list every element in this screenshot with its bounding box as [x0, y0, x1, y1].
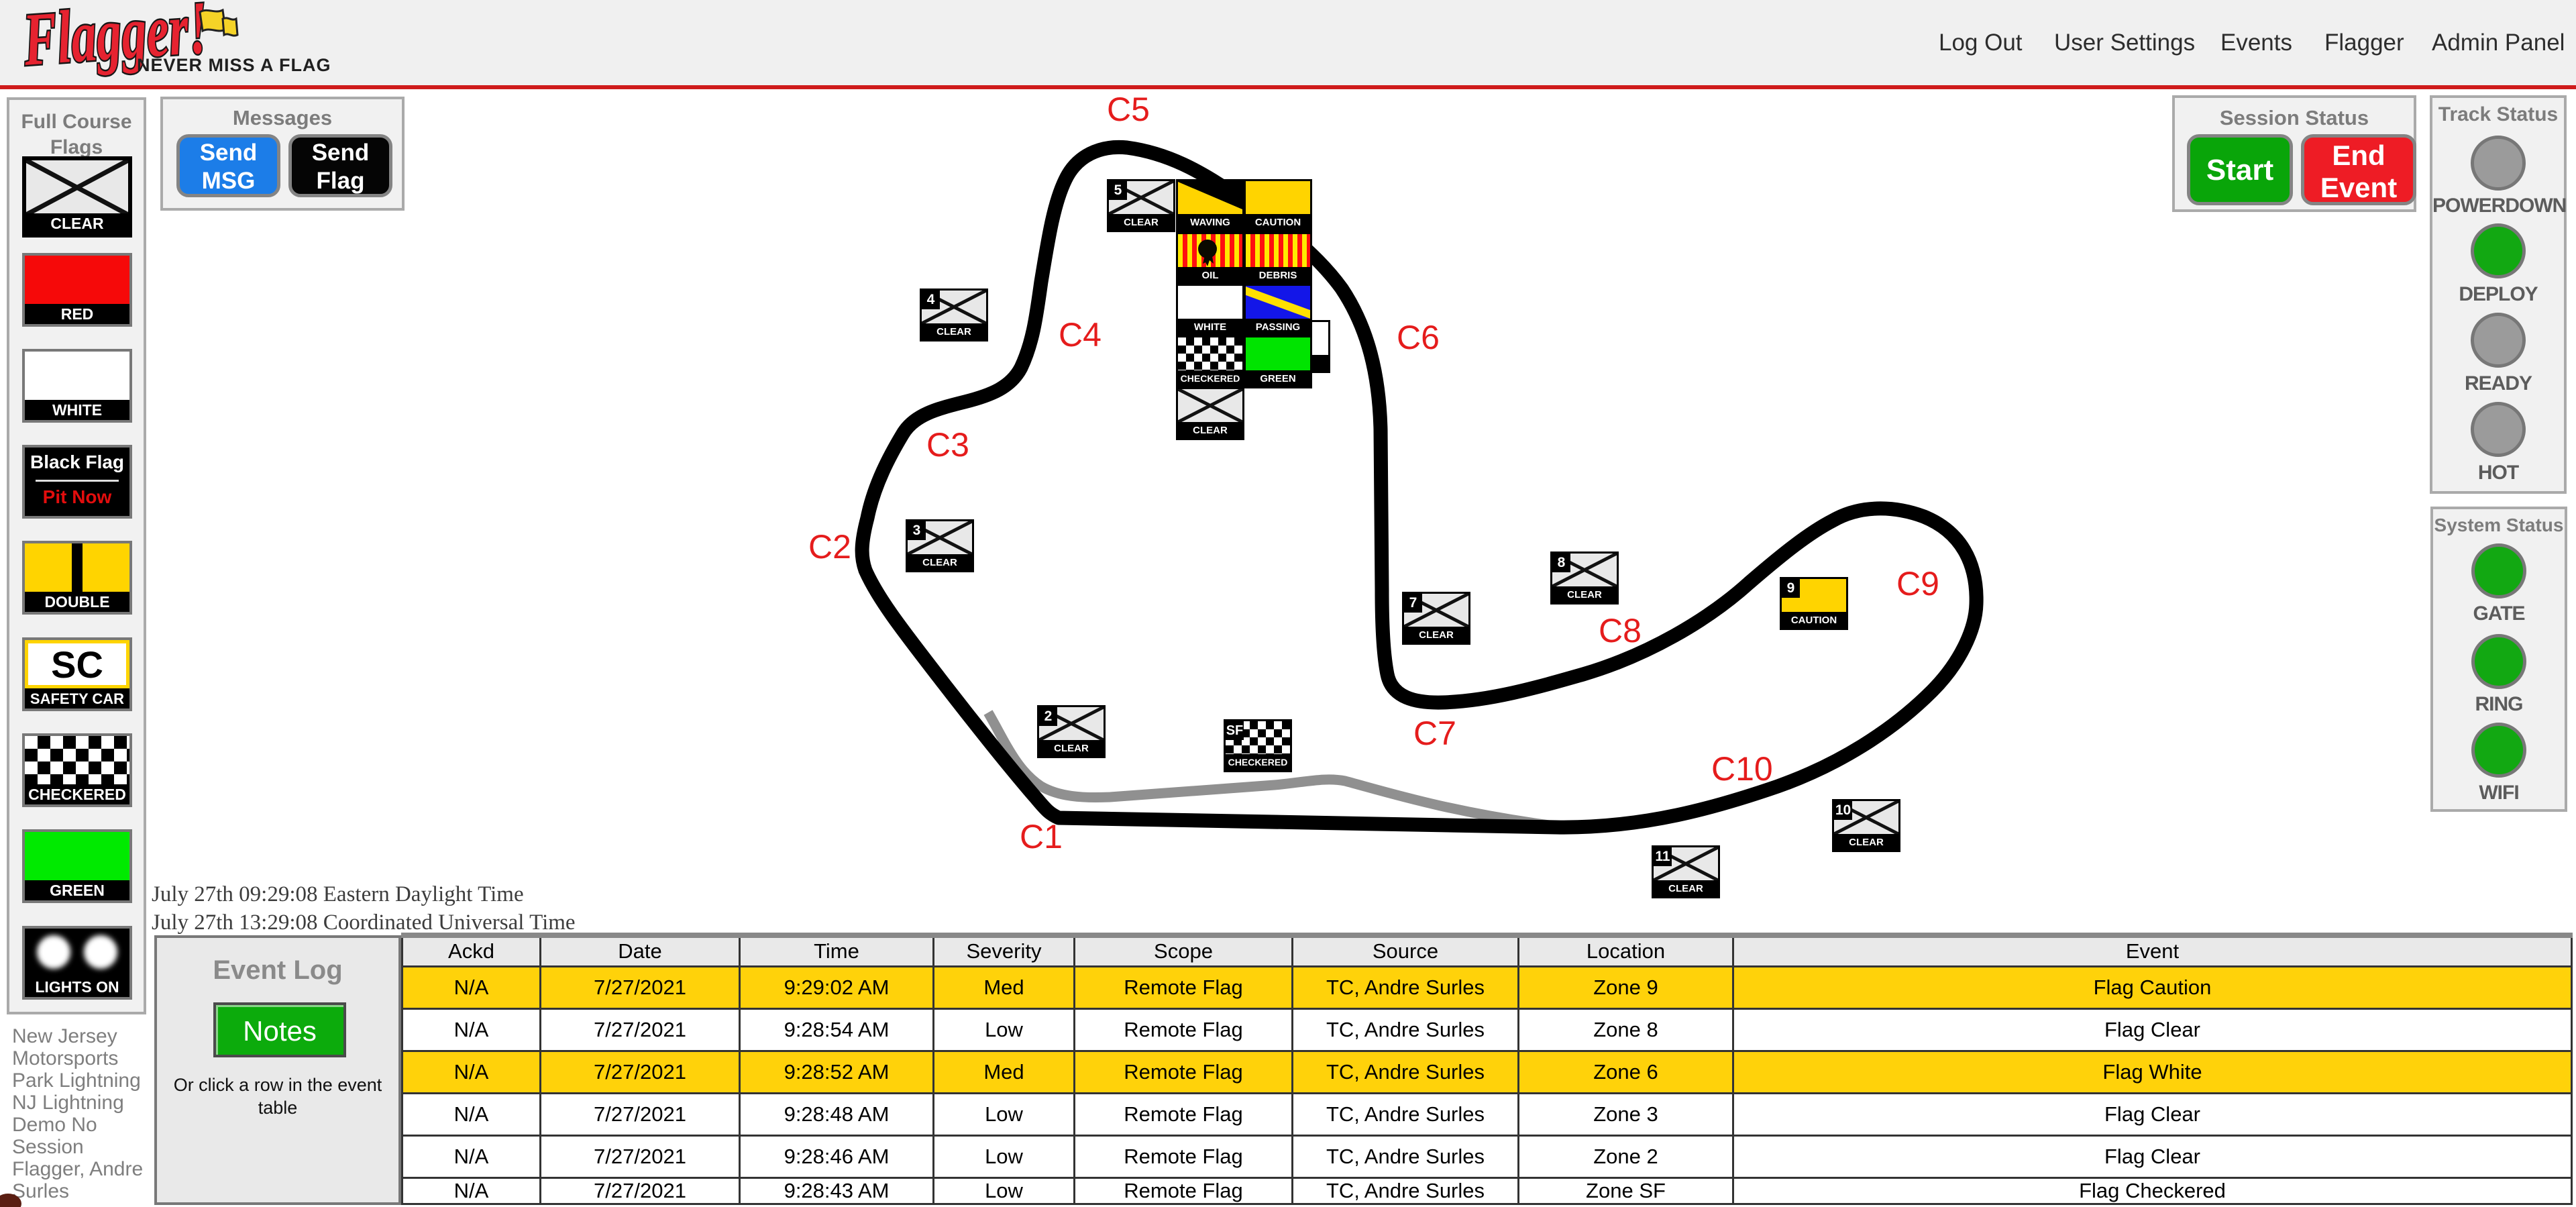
svg-text:C9: C9 [1896, 565, 1939, 602]
svg-text:C7: C7 [1413, 715, 1456, 752]
svg-text:C1: C1 [1020, 818, 1063, 855]
svg-text:C5: C5 [1107, 91, 1150, 128]
svg-text:C4: C4 [1059, 316, 1102, 354]
svg-text:C2: C2 [808, 528, 851, 566]
svg-text:C10: C10 [1711, 750, 1773, 788]
svg-text:C8: C8 [1599, 612, 1642, 649]
svg-text:C3: C3 [926, 426, 969, 464]
svg-text:C6: C6 [1397, 319, 1440, 356]
